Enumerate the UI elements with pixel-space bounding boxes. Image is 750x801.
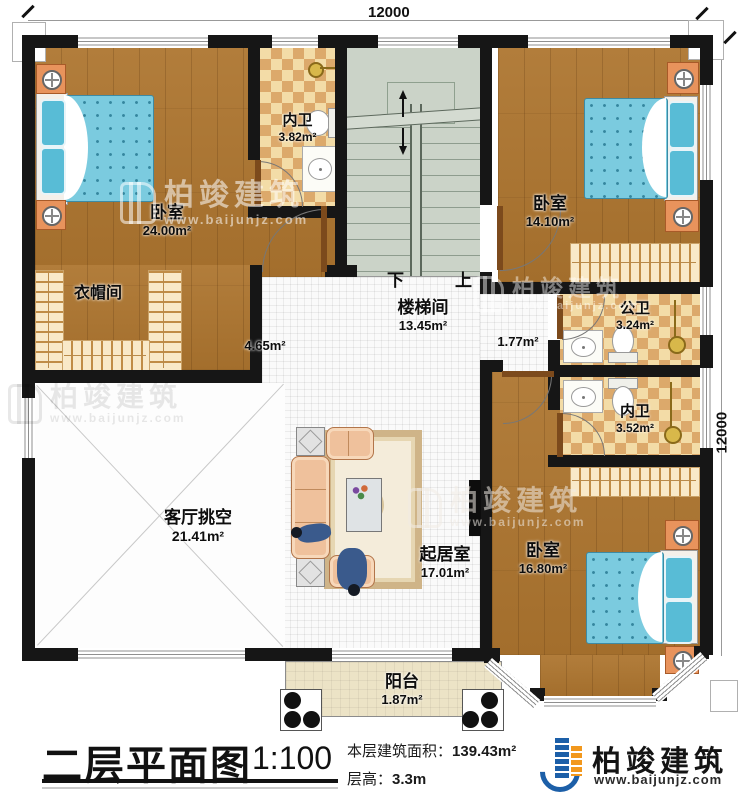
dimension-tick bbox=[21, 5, 34, 18]
room-label-bath-right: 内卫 3.52m² bbox=[593, 403, 677, 435]
room-area: 16.80m² bbox=[498, 561, 588, 577]
room-name: 卧室 bbox=[107, 203, 227, 223]
room-label-closet: 衣帽间 bbox=[53, 284, 143, 303]
toilet-tank bbox=[608, 352, 638, 363]
wardrobe bbox=[570, 467, 700, 497]
side-table bbox=[296, 427, 325, 456]
room-name: 公卫 bbox=[593, 300, 677, 318]
side-table bbox=[296, 558, 325, 587]
room-label-hall-left: 4.65m² bbox=[225, 338, 305, 354]
wall bbox=[480, 282, 700, 294]
sofa bbox=[326, 427, 374, 460]
lamp-icon bbox=[42, 206, 62, 226]
pillow bbox=[668, 101, 696, 149]
brand-logo-icon bbox=[540, 736, 588, 792]
wall bbox=[480, 48, 492, 205]
room-area: 1.87m² bbox=[360, 692, 444, 708]
wardrobe bbox=[62, 340, 150, 372]
dimension-line-top bbox=[28, 20, 706, 21]
sink-counter bbox=[302, 146, 337, 192]
shower-head-icon bbox=[668, 336, 686, 354]
shower-hose bbox=[320, 67, 336, 69]
stair-arrow-down bbox=[399, 146, 407, 155]
window bbox=[78, 35, 208, 48]
room-label-bedroom-br: 卧室 16.80m² bbox=[498, 541, 588, 577]
room-name: 卧室 bbox=[512, 194, 588, 214]
room-area: 24.00m² bbox=[107, 223, 227, 239]
wall bbox=[548, 365, 700, 377]
wall bbox=[700, 180, 713, 287]
brand-website: www.baijunjz.com bbox=[594, 772, 722, 787]
room-label-bedroom-tr: 卧室 14.10m² bbox=[512, 194, 588, 230]
sink-basin bbox=[571, 337, 596, 357]
pillow bbox=[664, 556, 694, 600]
column bbox=[481, 692, 498, 709]
wall bbox=[480, 360, 503, 372]
stair-arrow-stem bbox=[402, 99, 404, 117]
flower-decor bbox=[350, 484, 370, 500]
wall bbox=[22, 35, 35, 398]
wall bbox=[208, 35, 272, 48]
wardrobe-rail bbox=[572, 262, 696, 263]
wall bbox=[245, 648, 332, 661]
nightstand bbox=[36, 64, 66, 94]
wardrobe-rail bbox=[64, 355, 146, 356]
wardrobe bbox=[148, 270, 182, 372]
wall bbox=[22, 648, 78, 661]
room-label-bath-public: 公卫 3.24m² bbox=[593, 300, 677, 332]
wall bbox=[335, 48, 347, 277]
dimension-line-right bbox=[721, 38, 722, 656]
nightstand bbox=[36, 200, 66, 230]
door-leaf bbox=[497, 206, 503, 270]
column bbox=[462, 711, 479, 728]
pillow bbox=[40, 147, 66, 195]
wall bbox=[700, 335, 713, 368]
window bbox=[528, 35, 670, 48]
room-area: 1.77m² bbox=[478, 334, 558, 350]
nightstand bbox=[665, 200, 699, 232]
logo-building-blue bbox=[555, 738, 569, 778]
room-name: 阳台 bbox=[360, 672, 444, 692]
stair-arrow-up bbox=[399, 90, 407, 99]
pillow bbox=[668, 149, 696, 197]
room-name: 楼梯间 bbox=[378, 298, 468, 318]
wall bbox=[318, 35, 378, 48]
room-area: 3.52m² bbox=[593, 421, 677, 435]
room-name: 客厅挑空 bbox=[133, 508, 263, 528]
dimension-tick bbox=[723, 31, 736, 44]
door-leaf bbox=[321, 206, 327, 272]
grid-bubble bbox=[710, 680, 738, 712]
wall bbox=[700, 35, 713, 85]
wardrobe bbox=[570, 243, 700, 284]
room-name: 起居室 bbox=[400, 545, 490, 565]
lamp-icon bbox=[673, 526, 693, 546]
window bbox=[700, 85, 713, 180]
floor-area-label: 本层建筑面积： bbox=[347, 743, 452, 760]
stair-up-label: 上 bbox=[455, 266, 472, 291]
room-area: 3.24m² bbox=[593, 318, 677, 332]
wardrobe-rail bbox=[48, 272, 49, 368]
dimension-right-label: 12000 bbox=[714, 394, 731, 454]
room-area: 3.82m² bbox=[255, 130, 340, 144]
floor-height-value: 3.3m bbox=[392, 771, 426, 788]
lamp-icon bbox=[673, 207, 693, 227]
bay-window bbox=[544, 696, 656, 709]
room-label-bath-top: 内卫 3.82m² bbox=[255, 112, 340, 144]
nightstand bbox=[667, 62, 699, 94]
floor-area-value: 139.43m² bbox=[452, 743, 516, 760]
column bbox=[284, 692, 301, 709]
dimension-tick bbox=[695, 7, 708, 20]
room-name: 衣帽间 bbox=[53, 284, 143, 303]
floor-area-row: 本层建筑面积：139.43m² bbox=[347, 740, 516, 761]
window bbox=[378, 35, 458, 48]
wall bbox=[22, 370, 262, 383]
floor-plan: 12000 12000 bbox=[0, 0, 750, 801]
wall bbox=[325, 265, 357, 277]
lamp-icon bbox=[42, 70, 62, 90]
plan-scale: 1:100 bbox=[252, 740, 332, 777]
room-label-family: 起居室 17.01m² bbox=[400, 545, 490, 581]
room-area: 21.41m² bbox=[133, 528, 263, 545]
room-label-void: 客厅挑空 21.41m² bbox=[133, 508, 263, 545]
room-area: 13.45m² bbox=[378, 318, 468, 334]
stair-arrow-stem bbox=[402, 128, 404, 146]
stair-down-label: 下 bbox=[387, 266, 404, 291]
lamp-icon bbox=[674, 69, 694, 89]
room-area: 4.65m² bbox=[225, 338, 305, 354]
tv bbox=[469, 480, 481, 536]
floor-height-row: 层高：3.3m bbox=[347, 768, 426, 789]
pillow bbox=[664, 600, 694, 644]
window bbox=[700, 287, 713, 335]
room-label-bedroom-tl: 卧室 24.00m² bbox=[107, 203, 227, 239]
wall bbox=[480, 372, 492, 648]
room-name: 内卫 bbox=[593, 403, 677, 421]
window bbox=[78, 648, 245, 661]
room-label-balcony: 阳台 1.87m² bbox=[360, 672, 444, 708]
wardrobe-rail bbox=[572, 480, 696, 481]
room-label-hall-right: 1.77m² bbox=[478, 334, 558, 350]
dimension-top-label: 12000 bbox=[368, 4, 410, 21]
title-underline-thin bbox=[42, 787, 338, 789]
pillow bbox=[40, 99, 66, 147]
wall bbox=[250, 265, 262, 383]
sliding-door bbox=[332, 648, 452, 661]
bedroom-br-bay-floor bbox=[540, 655, 660, 697]
sink-basin bbox=[308, 158, 332, 180]
column bbox=[303, 711, 320, 728]
wardrobe-rail bbox=[163, 272, 164, 368]
window bbox=[272, 35, 318, 48]
nightstand bbox=[665, 520, 699, 550]
wall bbox=[22, 458, 35, 661]
person-head bbox=[348, 584, 360, 596]
room-name: 卧室 bbox=[498, 541, 588, 561]
wall bbox=[548, 455, 700, 467]
room-area: 14.10m² bbox=[512, 214, 588, 230]
column bbox=[481, 711, 498, 728]
room-label-stairwell: 楼梯间 13.45m² bbox=[378, 298, 468, 334]
wall bbox=[458, 35, 528, 48]
column bbox=[284, 711, 301, 728]
stair-rail bbox=[410, 104, 422, 277]
window bbox=[22, 398, 35, 458]
shower-head-icon bbox=[308, 62, 324, 78]
person-head bbox=[291, 527, 302, 538]
title-underline bbox=[42, 779, 338, 783]
window bbox=[700, 368, 713, 448]
room-name: 内卫 bbox=[255, 112, 340, 130]
door-leaf bbox=[255, 160, 261, 206]
door-leaf bbox=[557, 295, 563, 339]
room-area: 17.01m² bbox=[400, 565, 490, 581]
wall bbox=[700, 448, 713, 655]
logo-building-orange bbox=[571, 746, 582, 776]
sofa bbox=[291, 456, 330, 559]
door-leaf bbox=[502, 371, 554, 377]
door-leaf bbox=[557, 413, 563, 457]
floor-height-label: 层高： bbox=[347, 771, 392, 788]
